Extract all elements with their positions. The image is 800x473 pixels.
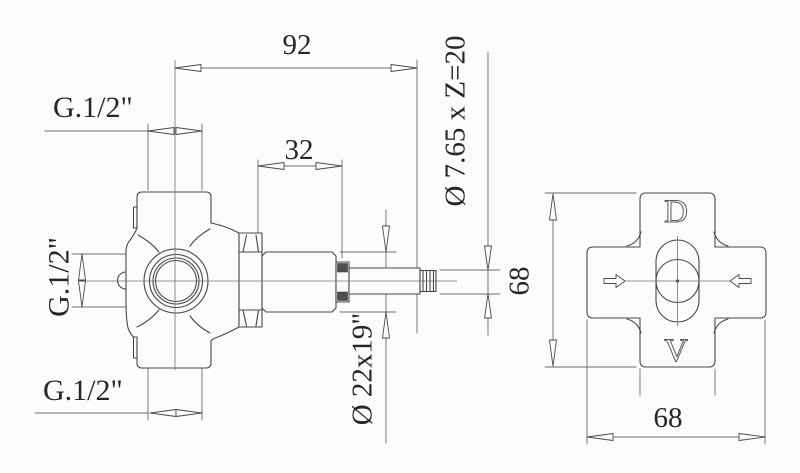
dim-92: 92: [175, 29, 417, 72]
thread-bottom-arrow-right: [176, 410, 202, 417]
cartridge-dia-arrow-top: [383, 226, 390, 252]
plate-marking-bottom: V: [664, 333, 688, 369]
dim-32-arrow-right: [316, 163, 342, 170]
cartridge-body: [262, 252, 336, 312]
cartridge-dia-arrow-bottom: [383, 312, 390, 338]
plate-fillet-tl: [627, 232, 641, 246]
cartridge-spec-label: Ø 22x19": [346, 313, 378, 426]
thread-top-arrow-right: [176, 128, 202, 135]
dim-spline-dia: Ø 7.65 x Z=20: [439, 35, 491, 318]
plate-fillet-tr: [714, 232, 728, 246]
plate-dim-height-label: 68: [503, 267, 535, 296]
dim-32-label: 32: [285, 134, 314, 166]
spline-spec-label: Ø 7.65 x Z=20: [439, 35, 471, 206]
body-tab-upper: [134, 207, 138, 228]
dim-thread-bottom: G.1/2": [35, 374, 202, 417]
plate-marking-top: D: [664, 194, 688, 230]
thread-bottom-label: G.1/2": [43, 374, 123, 407]
plate-width-arrow-right: [739, 434, 765, 441]
thread-top-label: G.1/2": [53, 91, 133, 124]
dim-32-arrow-left: [258, 163, 284, 170]
front-view: 92 32 G.1/2" G.1/2" G.1/2": [35, 29, 500, 443]
plate-view: D V 68 68: [503, 193, 766, 444]
dim-92-arrow-right: [391, 65, 417, 72]
dim-32: 32: [258, 134, 342, 170]
thread-side-arrow-up: [79, 254, 86, 280]
plate-fillet-bl: [627, 319, 641, 333]
plate-width-arrow-left: [587, 434, 613, 441]
thread-top-arrow-left: [148, 128, 174, 135]
plate-height-arrow-up: [550, 194, 557, 220]
retaining-ring: [336, 262, 349, 302]
dim-cartridge-dia: Ø 22x19": [346, 226, 389, 425]
drawing-sheet: 92 32 G.1/2" G.1/2" G.1/2": [0, 0, 800, 473]
thread-side-label: G.1/2": [43, 237, 76, 317]
plate-dim-width-label: 68: [654, 402, 683, 434]
retaining-ring-clip-bottom: [338, 292, 348, 301]
dim-thread-top: G.1/2": [45, 91, 202, 135]
dim-thread-side: G.1/2": [43, 237, 86, 317]
hex-nut: [239, 233, 262, 327]
technical-drawing: 92 32 G.1/2" G.1/2" G.1/2": [0, 0, 800, 473]
spline-dia-arrow-bottom: [485, 294, 492, 318]
plate-height-arrow-down: [550, 340, 557, 366]
thread-bottom-arrow-left: [150, 410, 176, 417]
retaining-ring-clip-top: [338, 264, 348, 273]
dim-92-label: 92: [283, 29, 312, 61]
spline-dia-arrow-top: [485, 246, 492, 270]
plate-fillet-br: [714, 319, 728, 333]
body-lug-left: [118, 272, 127, 289]
thread-side-arrow-down: [79, 281, 86, 307]
body-tab-lower: [134, 337, 138, 358]
dim-92-arrow-left: [175, 65, 201, 72]
